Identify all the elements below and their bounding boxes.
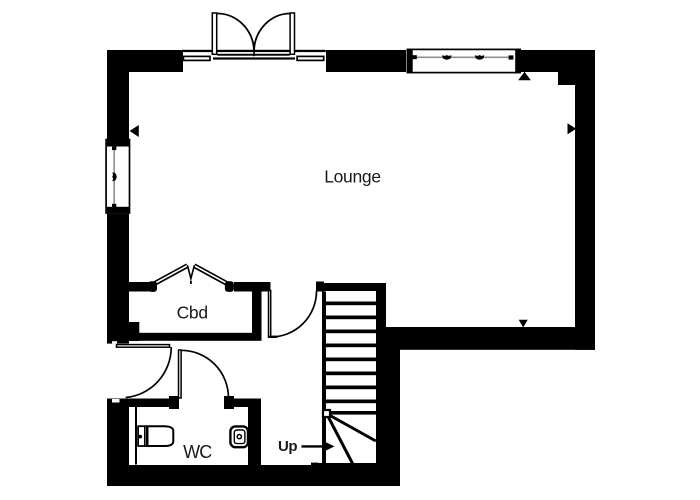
svg-text:WC: WC (183, 442, 212, 462)
svg-text:Lounge: Lounge (324, 167, 381, 187)
svg-text:Cbd: Cbd (177, 302, 208, 322)
svg-text:Up: Up (278, 438, 297, 455)
